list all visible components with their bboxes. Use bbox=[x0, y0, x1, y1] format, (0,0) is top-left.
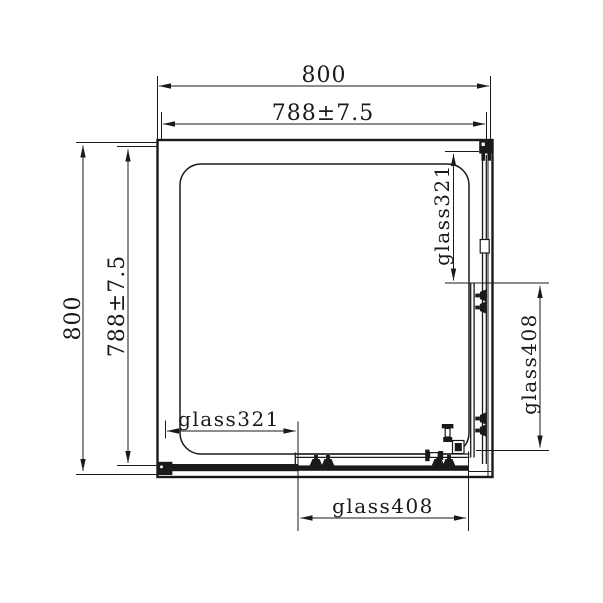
label-bottom-door-glass: glass408 bbox=[332, 494, 434, 518]
shower-enclosure-technical-drawing: 800 788±7.5 800 788±7.5 glass321 glass40… bbox=[0, 0, 603, 603]
right-door-rollers bbox=[475, 289, 486, 437]
drawing-canvas: 800 788±7.5 800 788±7.5 glass321 glass40… bbox=[0, 0, 603, 603]
label-overall-width: 800 bbox=[302, 63, 347, 88]
corner-hardware bbox=[425, 424, 464, 461]
bottom-left-end-cap bbox=[158, 462, 173, 475]
label-bottom-fixed-glass: glass321 bbox=[178, 407, 280, 431]
label-overall-height: 800 bbox=[61, 296, 86, 341]
right-sliding-door bbox=[471, 284, 474, 458]
label-inner-height: 788±7.5 bbox=[105, 255, 130, 357]
label-right-door-glass: glass408 bbox=[517, 313, 541, 415]
label-right-fixed-glass: glass321 bbox=[430, 164, 454, 266]
dimension-lines bbox=[83, 86, 540, 518]
bottom-sliding-door bbox=[295, 453, 469, 466]
top-right-bracket bbox=[479, 141, 492, 161]
right-panel-splice bbox=[480, 240, 489, 254]
label-inner-width: 788±7.5 bbox=[272, 101, 374, 126]
